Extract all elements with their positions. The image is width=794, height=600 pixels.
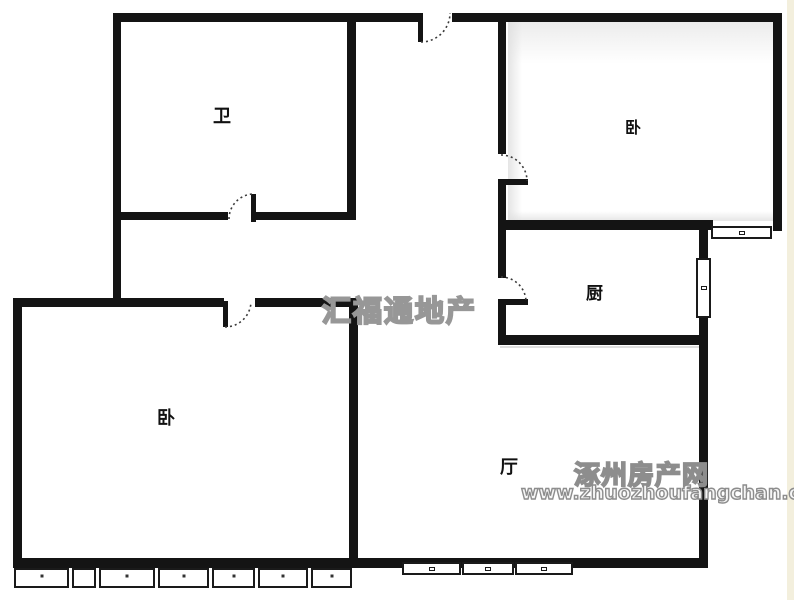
bedroom-left-door-arc (225, 302, 251, 327)
floorplan-canvas: 卫 卧 厨 卧 厅 汇福通地产 涿州房产网 www.zhuozhoufangch… (0, 0, 794, 600)
entry-door-arc (421, 13, 450, 42)
watermark-site-url: www.zhuozhoufangchan.com (521, 482, 794, 504)
kitchen-door-arc (501, 277, 526, 302)
bathroom-door-arc (229, 194, 254, 219)
bedroom-top-door-arc (501, 155, 527, 181)
watermark-agency: 汇福通地产 (322, 288, 477, 330)
